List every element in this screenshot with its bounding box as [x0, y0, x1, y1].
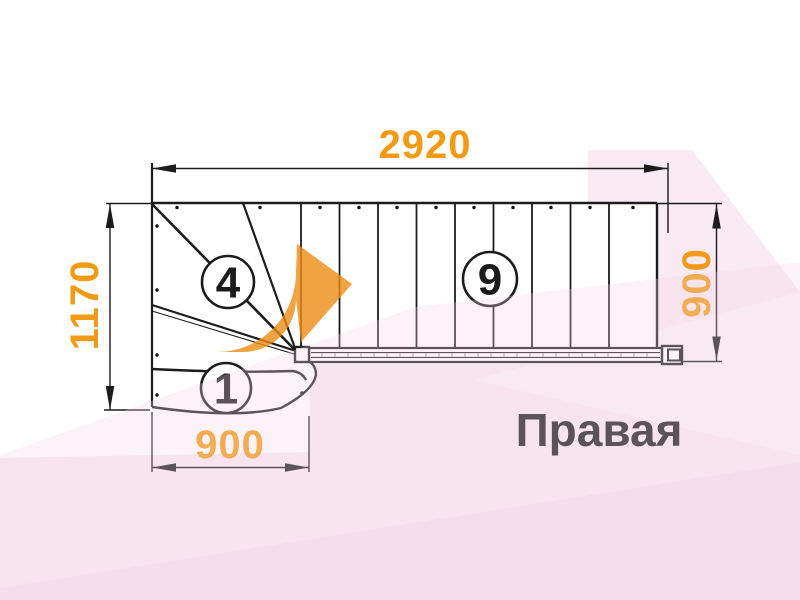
dimension-bottom: 900 — [152, 412, 309, 472]
dimension-arrow-right-icon — [644, 164, 668, 173]
right-newel-post — [662, 346, 682, 364]
page-title: Правая — [516, 404, 683, 456]
dimension-top-label: 2920 — [379, 123, 472, 167]
dimension-left: 1170 — [63, 204, 152, 411]
dimension-arrow-left-icon — [152, 164, 176, 173]
dimension-arrow-right-icon — [285, 463, 309, 472]
left-newel-post — [295, 347, 309, 362]
dimension-top: 2920 — [152, 123, 668, 173]
step-number-badge-1: 1 — [201, 363, 251, 414]
staircase-plan-page: 2920 1170 900 900 — [0, 0, 800, 600]
dimension-arrow-up-icon — [106, 204, 115, 228]
dimension-arrow-down-icon — [106, 386, 115, 410]
dimension-arrow-down-icon — [712, 337, 721, 361]
dimension-left-label: 1170 — [63, 260, 107, 351]
step-number-badge-4: 4 — [202, 256, 254, 308]
dimension-right: 900 — [675, 204, 722, 362]
step-number-9: 9 — [478, 256, 502, 305]
balustrade-band — [309, 348, 662, 362]
dimension-arrow-up-icon — [712, 205, 721, 229]
dimension-bottom-label: 900 — [195, 423, 265, 467]
dimension-right-label: 900 — [675, 248, 719, 318]
step-number-badge-9: 9 — [463, 252, 517, 306]
staircase-plan-drawing: 2920 1170 900 900 — [0, 0, 800, 600]
step-number-1: 1 — [214, 365, 238, 414]
step-number-4: 4 — [216, 259, 241, 308]
dimension-arrow-left-icon — [152, 463, 176, 472]
